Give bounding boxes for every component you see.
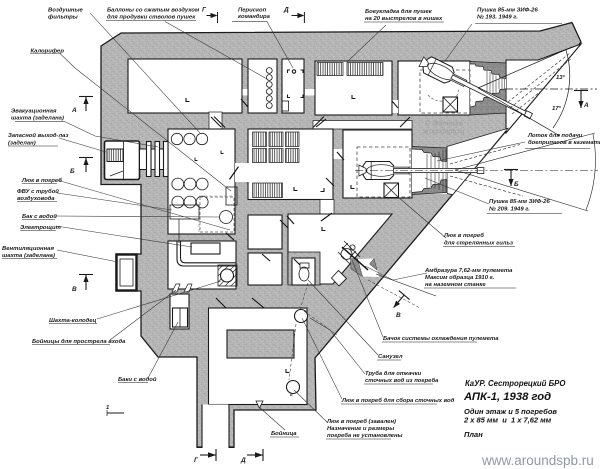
svg-text:Максим образца 1910 г.: Максим образца 1910 г. — [425, 274, 495, 281]
svg-text:на 20 выстрелов в нишах: на 20 выстрелов в нишах — [365, 16, 443, 22]
svg-text:www.aroundspb.ru: www.aroundspb.ru — [481, 453, 594, 468]
svg-text:Бачок системы охлаждения пулем: Бачок системы охлаждения пулемета — [383, 336, 499, 342]
svg-text:Бак с водой: Бак с водой — [22, 213, 57, 220]
svg-text:13°: 13° — [556, 75, 566, 81]
svg-text:АПК-1, 1938 год: АПК-1, 1938 год — [463, 391, 551, 403]
svg-text:1: 1 — [106, 405, 109, 411]
svg-text:ФВУ с трубой: ФВУ с трубой — [17, 188, 59, 195]
svg-text:Люк в погреб для сбора сточных: Люк в погреб для сбора сточных вод — [341, 397, 455, 404]
svg-text:шахта (заделана): шахта (заделана) — [2, 253, 55, 259]
svg-text:погреба не установлены: погреба не установлены — [327, 432, 403, 439]
svg-text:17°: 17° — [552, 106, 562, 112]
svg-text:План: План — [464, 430, 483, 439]
svg-text:Шахта-колодец: Шахта-колодец — [49, 318, 96, 324]
svg-text:Эвакуационная: Эвакуационная — [11, 109, 57, 115]
svg-text:Назначение и размеры: Назначение и размеры — [327, 426, 394, 432]
svg-text:А: А — [583, 102, 589, 109]
svg-text:Пушка 85-мм ЗИФ-26: Пушка 85-мм ЗИФ-26 — [489, 199, 550, 205]
svg-text:Б: Б — [514, 181, 519, 188]
svg-text:Баллоны со сжатым воздухом: Баллоны со сжатым воздухом — [107, 8, 200, 14]
svg-text:№ 193. 1949 г.: № 193. 1949 г. — [476, 14, 518, 21]
svg-text:воздуховода: воздуховода — [17, 196, 55, 202]
svg-text:Амбразура 7,62-мм пулемета: Амбразура 7,62-мм пулемета — [424, 267, 513, 274]
svg-text:Лоток для подачи: Лоток для подачи — [527, 133, 583, 139]
svg-text:Д: Д — [240, 457, 246, 464]
svg-text:сточных вод из погреба: сточных вод из погреба — [365, 377, 439, 384]
svg-text:(заделан): (заделан) — [8, 141, 36, 147]
svg-text:В: В — [72, 286, 77, 293]
svg-text:Люк в погреб: Люк в погреб — [443, 232, 484, 239]
svg-text:в: в — [290, 392, 293, 398]
svg-text:для стрелянных гильз: для стрелянных гильз — [444, 241, 513, 247]
svg-text:Боеукладка для пушек: Боеукладка для пушек — [365, 9, 433, 15]
svg-text:№ 209. 1949 г.: № 209. 1949 г. — [488, 206, 530, 213]
svg-text:aroundspb.ru: aroundspb.ru — [423, 129, 464, 136]
svg-text:шахта (заделана): шахта (заделана) — [11, 116, 64, 122]
svg-text:Воздушные: Воздушные — [48, 8, 84, 14]
svg-text:Бойницы для прострела входа: Бойницы для прострела входа — [32, 338, 126, 345]
svg-text:В: В — [396, 312, 401, 319]
svg-text:Д: Д — [283, 7, 289, 14]
svg-text:Люк в погреб: Люк в погреб — [21, 177, 62, 184]
svg-text:2 х 85 мм и 1 х 7,62 мм: 2 х 85 мм и 1 х 7,62 мм — [463, 416, 552, 425]
svg-text:Электрощит: Электрощит — [20, 225, 61, 231]
svg-text:Труба для откачки: Труба для откачки — [365, 370, 422, 377]
svg-text:А: А — [71, 107, 77, 114]
svg-text:на наземном станке: на наземном станке — [425, 282, 486, 288]
svg-text:Б: Б — [70, 168, 75, 175]
svg-text:Вентиляционная: Вентиляционная — [2, 246, 54, 252]
svg-text:Г: Г — [194, 457, 199, 464]
svg-text:© Эпическо: © Эпическо — [425, 120, 463, 128]
svg-text:командира: командира — [238, 14, 271, 20]
svg-text:Г: Г — [202, 7, 207, 14]
svg-text:боеприпасов в казематы: боеприпасов в казематы — [528, 139, 600, 146]
svg-text:КаУР. Сестрорецкий БРО: КаУР. Сестрорецкий БРО — [465, 379, 565, 388]
svg-text:фильтры: фильтры — [48, 14, 78, 21]
svg-text:Бойница: Бойница — [271, 430, 297, 437]
svg-text:Пушка 85-мм ЗИФ-26: Пушка 85-мм ЗИФ-26 — [477, 8, 538, 14]
svg-text:Запасной выход-лаз: Запасной выход-лаз — [8, 132, 68, 139]
svg-text:для продувки стволов пушек: для продувки стволов пушек — [107, 15, 196, 21]
svg-text:Люк в погреб (завален): Люк в погреб (завален) — [326, 418, 396, 425]
svg-text:Калорифер: Калорифер — [31, 48, 65, 55]
svg-text:Перископ: Перископ — [238, 8, 267, 14]
svg-text:Баки с водой: Баки с водой — [118, 376, 157, 383]
svg-text:Санузел: Санузел — [378, 354, 403, 360]
